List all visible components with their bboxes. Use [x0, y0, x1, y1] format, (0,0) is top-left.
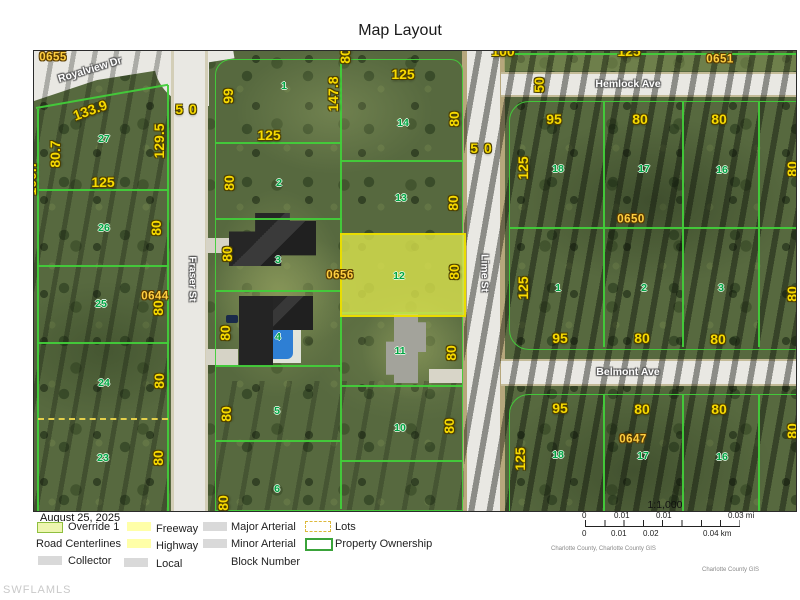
legend-label-collector: Collector — [68, 555, 111, 567]
dimension-label-80: 80 — [785, 161, 797, 177]
dimension-label-80: 80 — [218, 325, 232, 341]
street-label-lime-st: Lime St — [479, 254, 490, 292]
dimension-label-95: 95 — [552, 401, 568, 415]
scale-bar — [585, 520, 740, 527]
dimension-label-125: 125 — [513, 447, 527, 470]
parcel-line — [37, 265, 169, 267]
dimension-label-125: 125 — [91, 175, 114, 189]
legend-swatch-major-arterial — [203, 522, 227, 531]
scale-mi-2: 0.01 — [656, 511, 672, 520]
dimension-label-80: 80 — [151, 300, 165, 316]
gis-credit: Charlotte County GIS — [702, 567, 759, 573]
lot-number-1: 1 — [555, 283, 561, 294]
map-layout-page: Map Layout — [0, 0, 800, 600]
lot-number-2: 2 — [641, 283, 647, 294]
dimension-label-100.7: 100.7 — [33, 160, 38, 195]
lot-number-6: 6 — [274, 484, 280, 495]
lot-number-11: 11 — [394, 346, 405, 357]
dimension-label-80: 80 — [220, 246, 234, 262]
block-number-0647: 0647 — [619, 434, 647, 446]
dimension-label-80: 80 — [446, 195, 460, 211]
parcel-line — [682, 102, 684, 347]
block-number-0656: 0656 — [326, 270, 354, 282]
dimension-label-80: 80 — [447, 111, 461, 127]
legend-label-road-centerlines: Road Centerlines — [36, 538, 121, 550]
lot-number-12: 12 — [393, 271, 405, 282]
dimension-label-99: 99 — [221, 88, 235, 104]
dimension-label-80: 80 — [785, 286, 797, 302]
lot-number-14: 14 — [397, 118, 409, 129]
dimension-label-80: 80 — [151, 450, 165, 466]
dimension-label-80: 80 — [711, 402, 727, 416]
scale-km-2: 0.02 — [643, 529, 659, 538]
dimension-label-129.5: 129.5 — [152, 123, 166, 158]
parcel-line — [341, 385, 462, 387]
legend-label-lots: Lots — [335, 521, 356, 533]
parcel-line — [216, 290, 342, 292]
dimension-label-80: 80 — [442, 418, 456, 434]
scale-mi-3: 0.03 mi — [728, 511, 754, 520]
dimension-label-80: 80 — [711, 112, 727, 126]
dimension-label-125: 125 — [257, 128, 280, 142]
lot-number-13: 13 — [395, 193, 407, 204]
dimension-label-80: 80 — [222, 175, 236, 191]
legend-label-highway: Highway — [156, 540, 198, 552]
lot-number-3: 3 — [275, 255, 281, 266]
dimension-label-95: 95 — [546, 112, 562, 126]
legend-swatch-highway — [127, 539, 151, 548]
parcel-line — [603, 395, 605, 511]
dimension-label-80: 80 — [338, 50, 352, 64]
legend-swatch-freeway — [127, 522, 151, 531]
lot-number-4: 4 — [275, 332, 281, 343]
dimension-label-80: 80 — [216, 495, 230, 511]
street-label-hemlock-ave: Hemlock Ave — [595, 79, 660, 90]
lot-number-5: 5 — [274, 406, 280, 417]
block-number-0650: 0650 — [617, 214, 645, 226]
lots-dashed-line — [38, 418, 168, 420]
parcel-line — [341, 460, 462, 462]
dimension-label-80: 80 — [219, 406, 233, 422]
dimension-label-50: 50 — [470, 141, 498, 155]
parcel-line — [603, 102, 605, 347]
scale-mi-0: 0 — [582, 511, 586, 520]
dimension-label-80: 80 — [785, 423, 797, 439]
lot-number-3: 3 — [718, 283, 724, 294]
legend-label-property-ownership: Property Ownership — [335, 538, 432, 550]
lot-number-26: 26 — [98, 223, 110, 234]
dimension-label-80: 80 — [152, 373, 166, 389]
dimension-label-125: 125 — [516, 156, 530, 179]
dimension-label-100: 100 — [491, 50, 514, 58]
parcel-line — [37, 342, 169, 344]
lot-number-10: 10 — [394, 423, 406, 434]
block-number-0655: 0655 — [39, 52, 67, 64]
parcel-block-0650 — [509, 101, 797, 350]
dimension-label-125: 125 — [516, 276, 530, 299]
legend-label-block-number: Block Number — [231, 556, 300, 568]
dimension-label-125: 125 — [391, 67, 414, 81]
lot-number-23: 23 — [97, 453, 109, 464]
scale-km-0: 0 — [582, 529, 586, 538]
lot-number-2: 2 — [276, 178, 282, 189]
lot-number-16: 16 — [716, 452, 728, 463]
parcel-line — [514, 53, 796, 55]
lot-number-1: 1 — [281, 81, 287, 92]
parcel-line — [216, 365, 342, 367]
dimension-label-80: 80 — [444, 345, 458, 361]
legend-swatch-local — [124, 558, 148, 567]
map-credit: Charlotte County, Charlotte County GIS — [551, 546, 656, 552]
lot-number-18: 18 — [552, 164, 564, 175]
dimension-label-80: 80 — [149, 220, 163, 236]
dimension-label-147.8: 147.8 — [326, 76, 340, 111]
dimension-label-80: 80 — [632, 112, 648, 126]
legend-swatch-property-ownership — [305, 538, 333, 551]
legend-swatch-minor-arterial — [203, 539, 227, 548]
legend-label-minor-arterial: Minor Arterial — [231, 538, 296, 550]
block-number-0651: 0651 — [706, 54, 734, 66]
page-title: Map Layout — [0, 22, 800, 40]
lot-number-27: 27 — [98, 134, 110, 145]
dimension-label-50: 50 — [175, 102, 203, 116]
legend-label-local: Local — [156, 558, 182, 570]
legend-label-freeway: Freeway — [156, 523, 198, 535]
parcel-line — [682, 395, 684, 511]
legend-label-major-arterial: Major Arterial — [231, 521, 296, 533]
street-label-fraser-st: Fraser St — [187, 256, 198, 302]
dimension-label-80: 80 — [710, 332, 726, 346]
parcel-line — [510, 227, 797, 229]
scale-km-3: 0.04 km — [703, 529, 731, 538]
legend-swatch-override — [37, 522, 63, 533]
dimension-label-80: 80 — [634, 331, 650, 345]
parcel-line — [758, 102, 760, 347]
parcel-line — [216, 218, 342, 220]
dimension-label-50: 50 — [532, 77, 546, 93]
lot-number-25: 25 — [95, 299, 107, 310]
lot-number-17: 17 — [638, 164, 650, 175]
legend-swatch-lots — [305, 521, 331, 532]
legend-swatch-collector — [38, 556, 62, 565]
dimension-label-80: 80 — [447, 264, 461, 280]
lot-number-24: 24 — [98, 378, 110, 389]
dimension-label-80.7: 80.7 — [48, 140, 62, 167]
dimension-label-80: 80 — [634, 402, 650, 416]
street-label-belmont-ave: Belmont Ave — [596, 367, 659, 378]
lot-number-16: 16 — [716, 165, 728, 176]
lot-number-18: 18 — [552, 450, 564, 461]
lot-number-17: 17 — [637, 451, 649, 462]
legend-label-override: Override 1 — [68, 521, 119, 533]
scale-mi-1: 0.01 — [614, 511, 630, 520]
parcel-line — [216, 440, 342, 442]
map-canvas: Royalview DrHemlock AveBelmont AveFraser… — [33, 50, 797, 512]
watermark: SWFLAMLS — [3, 584, 72, 596]
dimension-label-125: 125 — [617, 50, 640, 58]
parcel-line — [758, 395, 760, 511]
parcel-line — [341, 160, 462, 162]
dimension-label-95: 95 — [552, 331, 568, 345]
scale-km-1: 0.01 — [611, 529, 627, 538]
